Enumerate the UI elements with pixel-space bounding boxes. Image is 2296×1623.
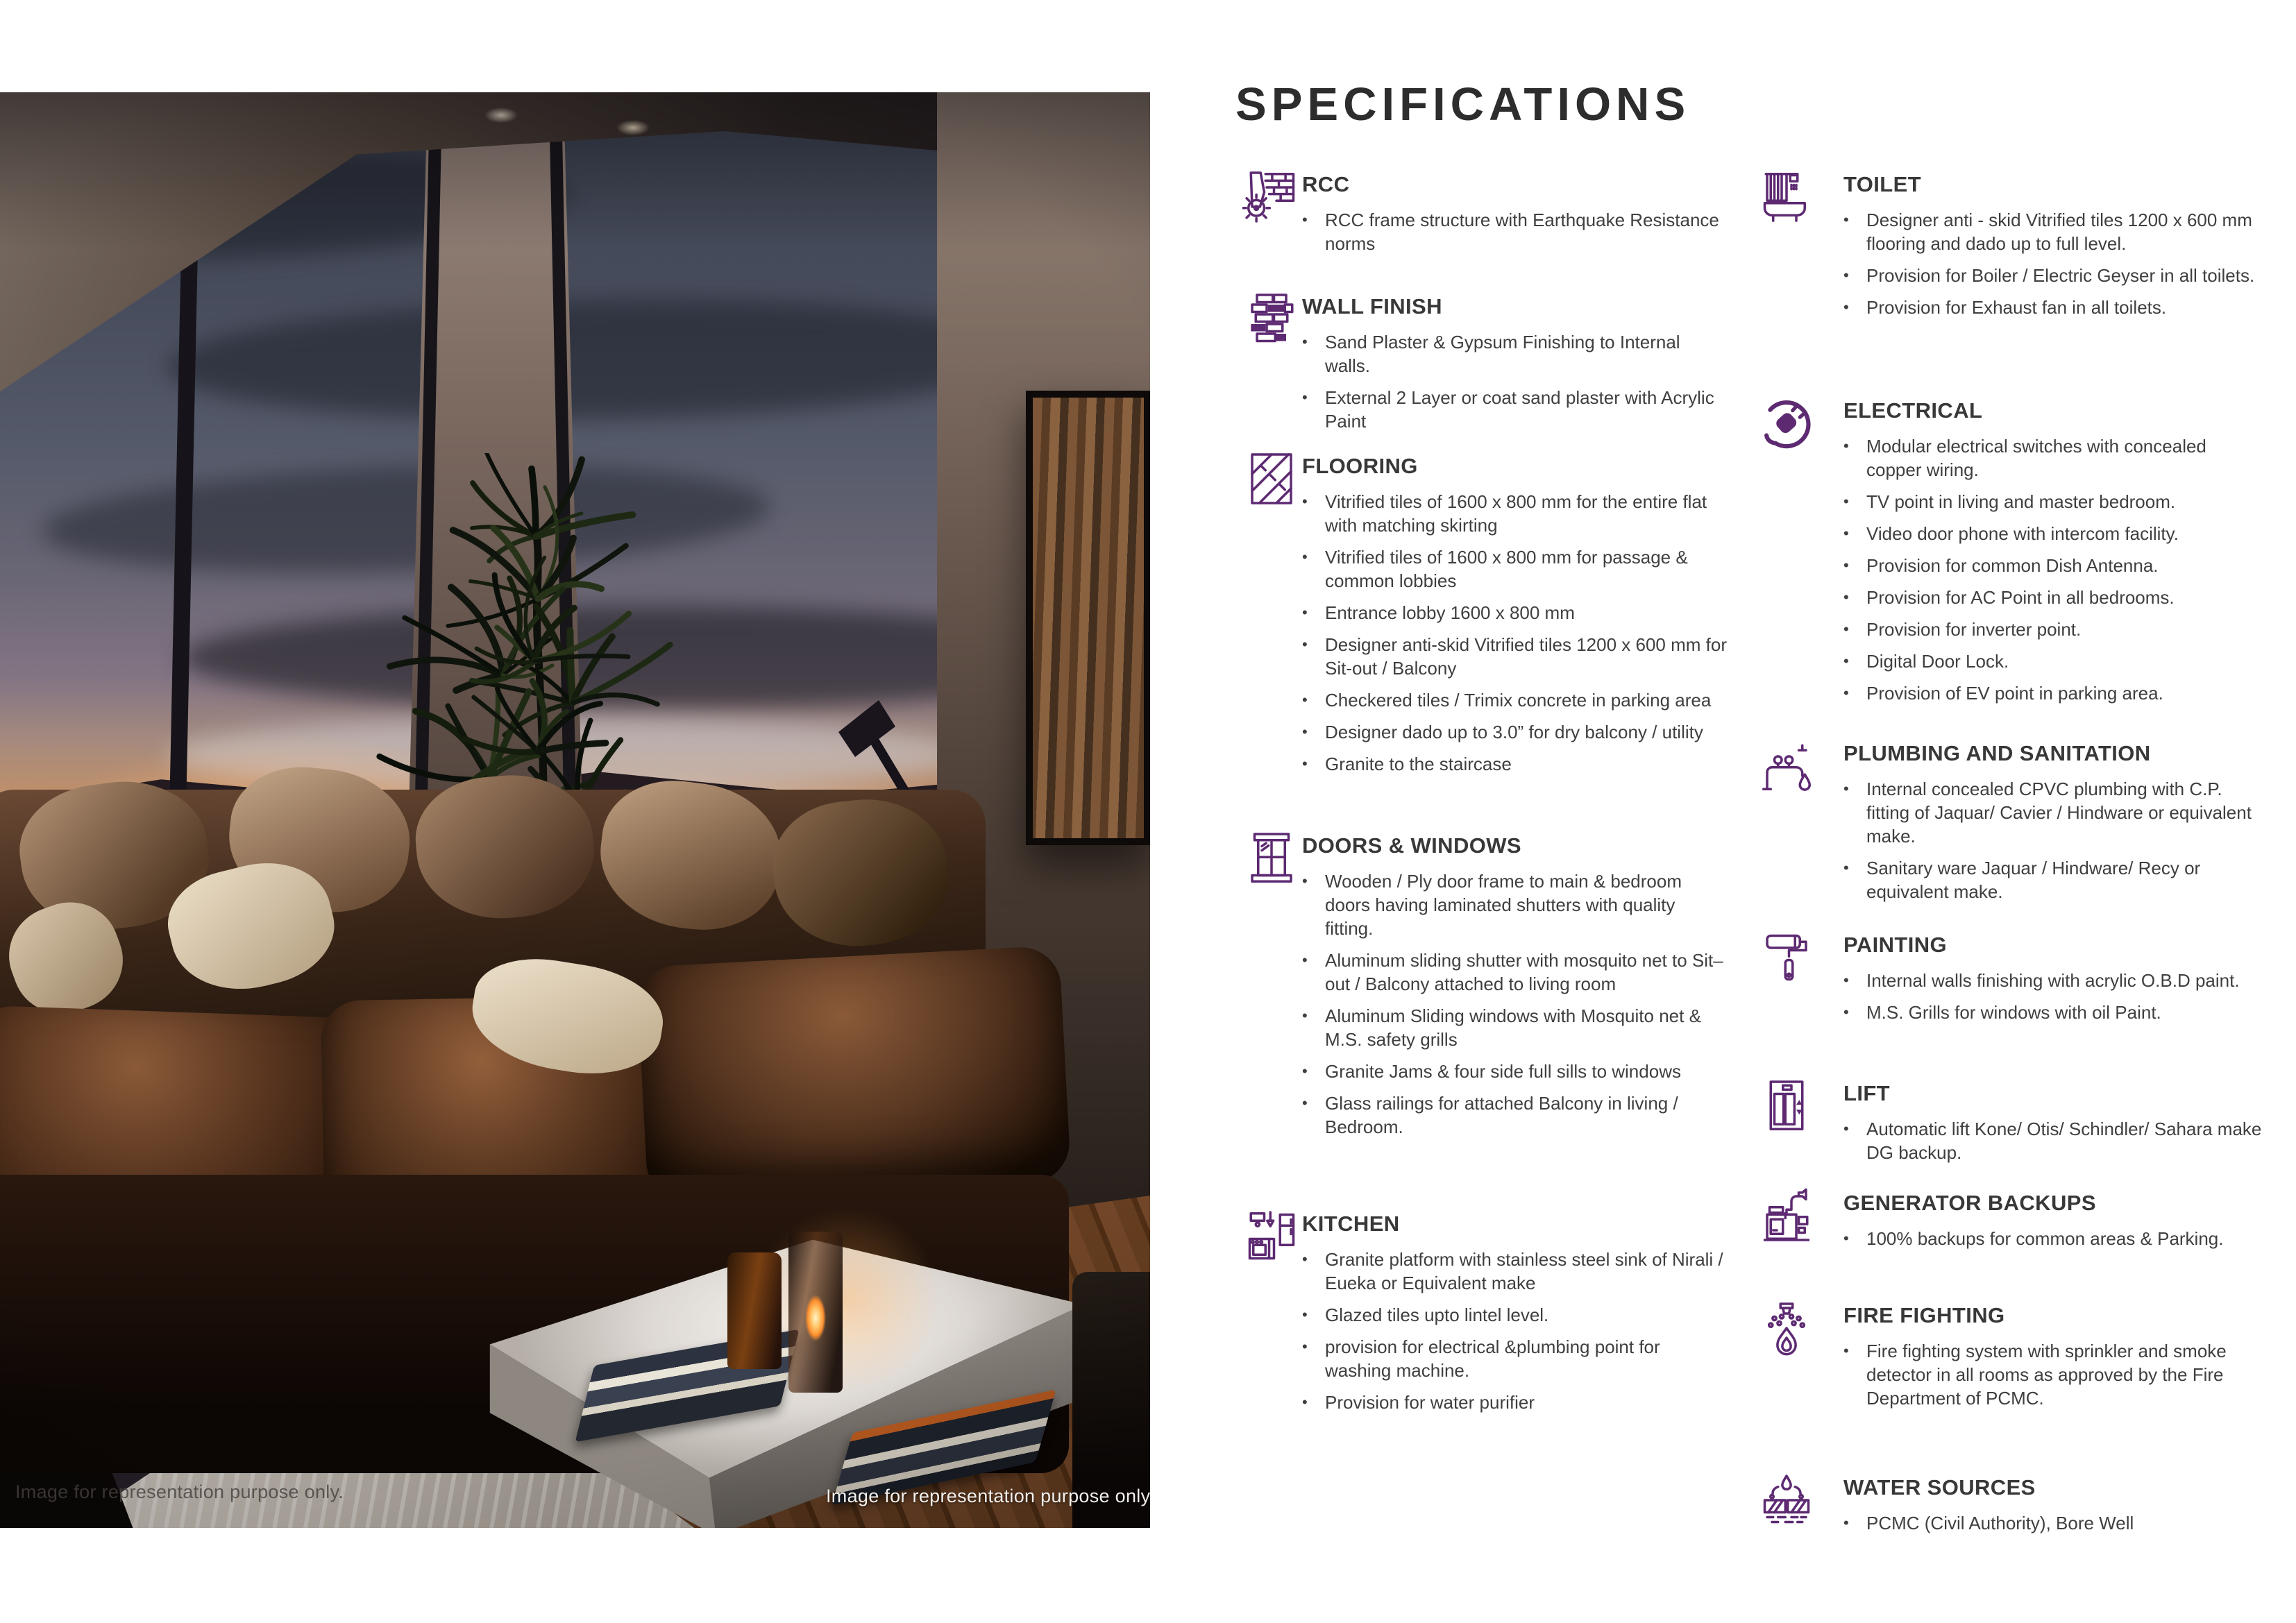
bullet-dot: • bbox=[1302, 1303, 1313, 1327]
bullet-text: Vitrified tiles of 1600 x 800 mm for pas… bbox=[1325, 545, 1727, 593]
spec-bullet: •100% backups for common areas & Parking… bbox=[1843, 1227, 2263, 1250]
spec-section-rcc: RCC•RCC frame structure with Earthquake … bbox=[1242, 168, 1727, 264]
spec-section-electrical: ELECTRICAL•Modular electrical switches w… bbox=[1757, 394, 2263, 713]
spec-section-doors-windows: DOORS & WINDOWS•Wooden / Ply door frame … bbox=[1242, 829, 1727, 1147]
spec-bullet: •provision for electrical &plumbing poin… bbox=[1302, 1335, 1727, 1382]
spec-bullet-list: •100% backups for common areas & Parking… bbox=[1843, 1227, 2263, 1250]
bullet-dot: • bbox=[1302, 1248, 1313, 1295]
spec-section-flooring: FLOORING•Vitrified tiles of 1600 x 800 m… bbox=[1242, 450, 1727, 784]
spec-bullet-list: •Sand Plaster & Gypsum Finishing to Inte… bbox=[1302, 330, 1727, 433]
bullet-text: PCMC (Civil Authority), Bore Well bbox=[1866, 1511, 2134, 1535]
spec-bullet: •Provision for inverter point. bbox=[1843, 618, 2263, 641]
doors-windows-icon bbox=[1242, 829, 1301, 887]
section-title: FIRE FIGHTING bbox=[1843, 1303, 2263, 1328]
bullet-dot: • bbox=[1302, 1004, 1313, 1051]
spec-bullet-list: •PCMC (Civil Authority), Bore Well bbox=[1843, 1511, 2263, 1535]
bullet-dot: • bbox=[1302, 545, 1313, 593]
spec-bullet: •Sand Plaster & Gypsum Finishing to Inte… bbox=[1302, 330, 1727, 377]
bullet-text: Provision for common Dish Antenna. bbox=[1866, 554, 2159, 577]
bullet-dot: • bbox=[1302, 386, 1313, 433]
photo-vignette bbox=[0, 92, 1150, 1528]
section-title: WALL FINISH bbox=[1302, 294, 1727, 319]
spec-bullet: •Aluminum Sliding windows with Mosquito … bbox=[1302, 1004, 1727, 1051]
bullet-text: M.S. Grills for windows with oil Paint. bbox=[1866, 1001, 2161, 1024]
bullet-text: Modular electrical switches with conceal… bbox=[1866, 434, 2263, 482]
bullet-text: Sand Plaster & Gypsum Finishing to Inter… bbox=[1325, 330, 1727, 377]
bullet-dot: • bbox=[1843, 681, 1855, 705]
spec-bullet: •M.S. Grills for windows with oil Paint. bbox=[1843, 1001, 2263, 1024]
fire-fighting-icon bbox=[1757, 1299, 1816, 1357]
bullet-dot: • bbox=[1843, 296, 1855, 319]
bullet-text: RCC frame structure with Earthquake Resi… bbox=[1325, 208, 1727, 255]
bullet-text: Digital Door Lock. bbox=[1866, 649, 2009, 673]
toilet-icon bbox=[1757, 168, 1816, 226]
spec-bullet-list: •Internal concealed CPVC plumbing with C… bbox=[1843, 777, 2263, 903]
spec-bullet: •External 2 Layer or coat sand plaster w… bbox=[1302, 386, 1727, 433]
generator-icon bbox=[1757, 1187, 1816, 1245]
section-title: TOILET bbox=[1843, 172, 2263, 197]
painting-icon bbox=[1757, 928, 1816, 987]
bullet-dot: • bbox=[1843, 1117, 1855, 1164]
bullet-text: Provision of EV point in parking area. bbox=[1866, 681, 2163, 705]
bullet-dot: • bbox=[1302, 1091, 1313, 1139]
lift-icon bbox=[1757, 1077, 1816, 1135]
spec-bullet: •Glass railings for attached Balcony in … bbox=[1302, 1091, 1727, 1139]
section-title: PLUMBING AND SANITATION bbox=[1843, 741, 2263, 766]
spec-bullet: •Provision for AC Point in all bedrooms. bbox=[1843, 586, 2263, 609]
spec-bullet: •Fire fighting system with sprinkler and… bbox=[1843, 1339, 2263, 1410]
bullet-dot: • bbox=[1302, 1335, 1313, 1382]
spec-bullet: •Designer anti-skid Vitrified tiles 1200… bbox=[1302, 633, 1727, 680]
bullet-text: Aluminum Sliding windows with Mosquito n… bbox=[1325, 1004, 1727, 1051]
spec-bullet-list: •Vitrified tiles of 1600 x 800 mm for th… bbox=[1302, 490, 1727, 776]
spec-bullet: •Digital Door Lock. bbox=[1843, 649, 2263, 673]
bullet-text: Granite platform with stainless steel si… bbox=[1325, 1248, 1727, 1295]
bullet-text: External 2 Layer or coat sand plaster wi… bbox=[1325, 386, 1727, 433]
spec-section-fire-fighting: FIRE FIGHTING•Fire fighting system with … bbox=[1757, 1299, 2263, 1418]
spec-bullet: •Modular electrical switches with concea… bbox=[1843, 434, 2263, 482]
spec-bullet: •Provision for Boiler / Electric Geyser … bbox=[1843, 264, 2263, 287]
kitchen-icon bbox=[1242, 1207, 1301, 1266]
spec-bullet: •Automatic lift Kone/ Otis/ Schindler/ S… bbox=[1843, 1117, 2263, 1164]
spec-bullet-list: •Designer anti - skid Vitrified tiles 12… bbox=[1843, 208, 2263, 319]
electrical-icon bbox=[1757, 394, 1816, 452]
bullet-text: Aluminum sliding shutter with mosquito n… bbox=[1325, 949, 1727, 996]
section-title: PAINTING bbox=[1843, 933, 2263, 958]
spec-bullet: •Provision for Exhaust fan in all toilet… bbox=[1843, 296, 2263, 319]
spec-bullet: •PCMC (Civil Authority), Bore Well bbox=[1843, 1511, 2263, 1535]
spec-bullet-list: •RCC frame structure with Earthquake Res… bbox=[1302, 208, 1727, 255]
bullet-dot: • bbox=[1843, 969, 1855, 992]
bullet-dot: • bbox=[1302, 490, 1313, 537]
spec-bullet-list: •Granite platform with stainless steel s… bbox=[1302, 1248, 1727, 1414]
spec-bullet-list: •Wooden / Ply door frame to main & bedro… bbox=[1302, 869, 1727, 1139]
spec-section-wall-finish: WALL FINISH•Sand Plaster & Gypsum Finish… bbox=[1242, 290, 1727, 441]
bullet-text: Granite to the staircase bbox=[1325, 752, 1512, 776]
bullet-text: 100% backups for common areas & Parking. bbox=[1866, 1227, 2223, 1250]
bullet-text: Entrance lobby 1600 x 800 mm bbox=[1325, 601, 1575, 624]
spec-section-plumbing-and-sanitation: PLUMBING AND SANITATION•Internal conceal… bbox=[1757, 737, 2263, 912]
bullet-text: Designer anti-skid Vitrified tiles 1200 … bbox=[1325, 633, 1727, 680]
photo-caption-right: Image for representation purpose only. bbox=[826, 1486, 1150, 1507]
spec-bullet-list: •Automatic lift Kone/ Otis/ Schindler/ S… bbox=[1843, 1117, 2263, 1164]
spec-bullet: •Granite platform with stainless steel s… bbox=[1302, 1248, 1727, 1295]
spec-bullet-list: •Modular electrical switches with concea… bbox=[1843, 434, 2263, 705]
bullet-text: Provision for Boiler / Electric Geyser i… bbox=[1866, 264, 2254, 287]
bullet-dot: • bbox=[1302, 752, 1313, 776]
spec-bullet-list: •Internal walls finishing with acrylic O… bbox=[1843, 969, 2263, 1024]
section-title: KITCHEN bbox=[1302, 1212, 1727, 1237]
spec-bullet: •Video door phone with intercom facility… bbox=[1843, 522, 2263, 545]
bullet-dot: • bbox=[1843, 1339, 1855, 1410]
section-title: FLOORING bbox=[1302, 454, 1727, 479]
spec-bullet: •Glazed tiles upto lintel level. bbox=[1302, 1303, 1727, 1327]
bullet-text: Vitrified tiles of 1600 x 800 mm for the… bbox=[1325, 490, 1727, 537]
bullet-dot: • bbox=[1843, 1001, 1855, 1024]
bullet-text: Provision for AC Point in all bedrooms. bbox=[1866, 586, 2175, 609]
spec-bullet-list: •Fire fighting system with sprinkler and… bbox=[1843, 1339, 2263, 1410]
bullet-text: Automatic lift Kone/ Otis/ Schindler/ Sa… bbox=[1866, 1117, 2263, 1164]
plumbing-icon bbox=[1757, 737, 1816, 795]
spec-bullet: •Wooden / Ply door frame to main & bedro… bbox=[1302, 869, 1727, 940]
spec-bullet: •Internal walls finishing with acrylic O… bbox=[1843, 969, 2263, 992]
bullet-text: provision for electrical &plumbing point… bbox=[1325, 1335, 1727, 1382]
photo-caption-left: Image for representation purpose only. bbox=[15, 1481, 344, 1503]
bullet-text: Wooden / Ply door frame to main & bedroo… bbox=[1325, 869, 1727, 940]
bullet-text: Internal concealed CPVC plumbing with C.… bbox=[1866, 777, 2263, 848]
bullet-dot: • bbox=[1843, 554, 1855, 577]
spec-section-toilet: TOILET•Designer anti - skid Vitrified ti… bbox=[1757, 168, 2263, 328]
living-room-photo: Image for representation purpose only. I… bbox=[0, 92, 1150, 1528]
spec-bullet: •Internal concealed CPVC plumbing with C… bbox=[1843, 777, 2263, 848]
spec-bullet: •Provision for common Dish Antenna. bbox=[1843, 554, 2263, 577]
spec-bullet: •TV point in living and master bedroom. bbox=[1843, 490, 2263, 513]
spec-section-painting: PAINTING•Internal walls finishing with a… bbox=[1757, 928, 2263, 1033]
bullet-text: Designer dado up to 3.0” for dry balcony… bbox=[1325, 720, 1703, 744]
spec-bullet: •Checkered tiles / Trimix concrete in pa… bbox=[1302, 688, 1727, 712]
bullet-dot: • bbox=[1843, 649, 1855, 673]
spec-bullet: •Granite Jams & four side full sills to … bbox=[1302, 1060, 1727, 1083]
spec-bullet: •Designer dado up to 3.0” for dry balcon… bbox=[1302, 720, 1727, 744]
bullet-dot: • bbox=[1302, 720, 1313, 744]
bullet-dot: • bbox=[1843, 1511, 1855, 1535]
spec-bullet: •RCC frame structure with Earthquake Res… bbox=[1302, 208, 1727, 255]
section-title: ELECTRICAL bbox=[1843, 398, 2263, 423]
flooring-icon bbox=[1242, 450, 1301, 508]
bullet-dot: • bbox=[1302, 633, 1313, 680]
spec-bullet: •Designer anti - skid Vitrified tiles 12… bbox=[1843, 208, 2263, 255]
section-title: WATER SOURCES bbox=[1843, 1475, 2263, 1500]
bullet-text: Glass railings for attached Balcony in l… bbox=[1325, 1091, 1727, 1139]
bullet-dot: • bbox=[1843, 522, 1855, 545]
spec-bullet: •Sanitary ware Jaquar / Hindware/ Recy o… bbox=[1843, 856, 2263, 903]
spec-bullet: •Vitrified tiles of 1600 x 800 mm for th… bbox=[1302, 490, 1727, 537]
bullet-dot: • bbox=[1843, 264, 1855, 287]
bullet-dot: • bbox=[1843, 618, 1855, 641]
bullet-dot: • bbox=[1843, 490, 1855, 513]
water-sources-icon bbox=[1757, 1471, 1816, 1529]
section-title: LIFT bbox=[1843, 1081, 2263, 1106]
bullet-dot: • bbox=[1302, 869, 1313, 940]
bullet-text: Video door phone with intercom facility. bbox=[1866, 522, 2179, 545]
spec-bullet: •Granite to the staircase bbox=[1302, 752, 1727, 776]
bullet-text: Internal walls finishing with acrylic O.… bbox=[1866, 969, 2240, 992]
bullet-text: Sanitary ware Jaquar / Hindware/ Recy or… bbox=[1866, 856, 2263, 903]
bullet-dot: • bbox=[1843, 856, 1855, 903]
bullet-text: Fire fighting system with sprinkler and … bbox=[1866, 1339, 2263, 1410]
bullet-text: Checkered tiles / Trimix concrete in par… bbox=[1325, 688, 1711, 712]
bullet-text: Glazed tiles upto lintel level. bbox=[1325, 1303, 1548, 1327]
bullet-text: Provision for water purifier bbox=[1325, 1391, 1535, 1414]
bullet-dot: • bbox=[1302, 1391, 1313, 1414]
bullet-dot: • bbox=[1843, 208, 1855, 255]
brochure-page: Image for representation purpose only. I… bbox=[0, 0, 2296, 1623]
spec-section-kitchen: KITCHEN•Granite platform with stainless … bbox=[1242, 1207, 1727, 1422]
bullet-dot: • bbox=[1843, 777, 1855, 848]
rcc-icon bbox=[1242, 168, 1301, 226]
bullet-dot: • bbox=[1302, 688, 1313, 712]
bullet-text: Provision for Exhaust fan in all toilets… bbox=[1866, 296, 2166, 319]
section-title: GENERATOR BACKUPS bbox=[1843, 1191, 2263, 1216]
spec-bullet: •Vitrified tiles of 1600 x 800 mm for pa… bbox=[1302, 545, 1727, 593]
spec-bullet: •Provision for water purifier bbox=[1302, 1391, 1727, 1414]
bullet-text: Provision for inverter point. bbox=[1866, 618, 2081, 641]
spec-section-lift: LIFT•Automatic lift Kone/ Otis/ Schindle… bbox=[1757, 1077, 2263, 1173]
bullet-dot: • bbox=[1302, 949, 1313, 996]
bullet-dot: • bbox=[1302, 330, 1313, 377]
spec-section-water-sources: WATER SOURCES•PCMC (Civil Authority), Bo… bbox=[1757, 1471, 2263, 1543]
bullet-dot: • bbox=[1843, 434, 1855, 482]
bullet-dot: • bbox=[1302, 601, 1313, 624]
spec-bullet: •Entrance lobby 1600 x 800 mm bbox=[1302, 601, 1727, 624]
spec-section-generator-backups: GENERATOR BACKUPS•100% backups for commo… bbox=[1757, 1187, 2263, 1259]
bullet-text: Designer anti - skid Vitrified tiles 120… bbox=[1866, 208, 2263, 255]
spec-bullet: •Provision of EV point in parking area. bbox=[1843, 681, 2263, 705]
spec-bullet: •Aluminum sliding shutter with mosquito … bbox=[1302, 949, 1727, 996]
bullet-dot: • bbox=[1302, 1060, 1313, 1083]
bullet-dot: • bbox=[1843, 1227, 1855, 1250]
bullet-dot: • bbox=[1302, 208, 1313, 255]
bullet-text: TV point in living and master bedroom. bbox=[1866, 490, 2175, 513]
wall-finish-icon bbox=[1242, 290, 1301, 348]
bullet-dot: • bbox=[1843, 586, 1855, 609]
bullet-text: Granite Jams & four side full sills to w… bbox=[1325, 1060, 1681, 1083]
section-title: DOORS & WINDOWS bbox=[1302, 833, 1727, 858]
page-title: SPECIFICATIONS bbox=[1235, 78, 1690, 131]
section-title: RCC bbox=[1302, 172, 1727, 197]
